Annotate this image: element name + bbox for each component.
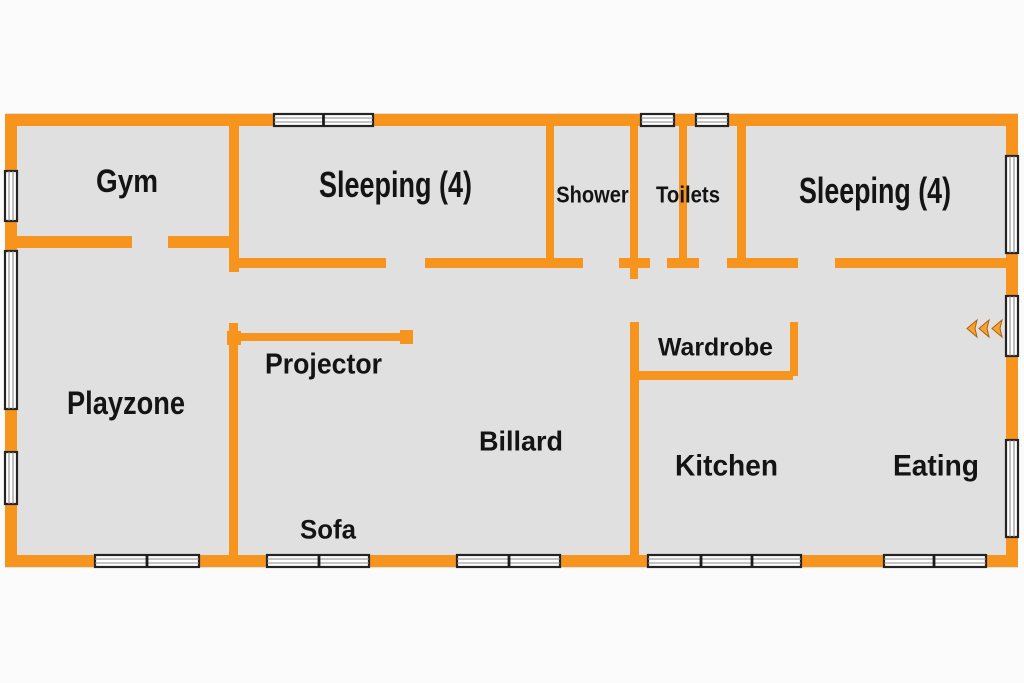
svg-text:Billard: Billard <box>479 426 563 457</box>
svg-text:Projector: Projector <box>265 349 382 381</box>
svg-text:Sleeping (4): Sleeping (4) <box>319 164 472 205</box>
svg-text:Toilets: Toilets <box>656 181 720 207</box>
svg-text:Sofa: Sofa <box>300 515 357 545</box>
svg-text:Gym: Gym <box>96 163 158 199</box>
svg-text:Kitchen: Kitchen <box>675 449 778 482</box>
svg-text:Shower: Shower <box>556 181 629 207</box>
svg-text:Wardrobe: Wardrobe <box>658 333 773 361</box>
svg-text:Sleeping (4): Sleeping (4) <box>799 170 951 211</box>
svg-text:Eating: Eating <box>893 449 979 482</box>
svg-text:Playzone: Playzone <box>67 385 185 421</box>
